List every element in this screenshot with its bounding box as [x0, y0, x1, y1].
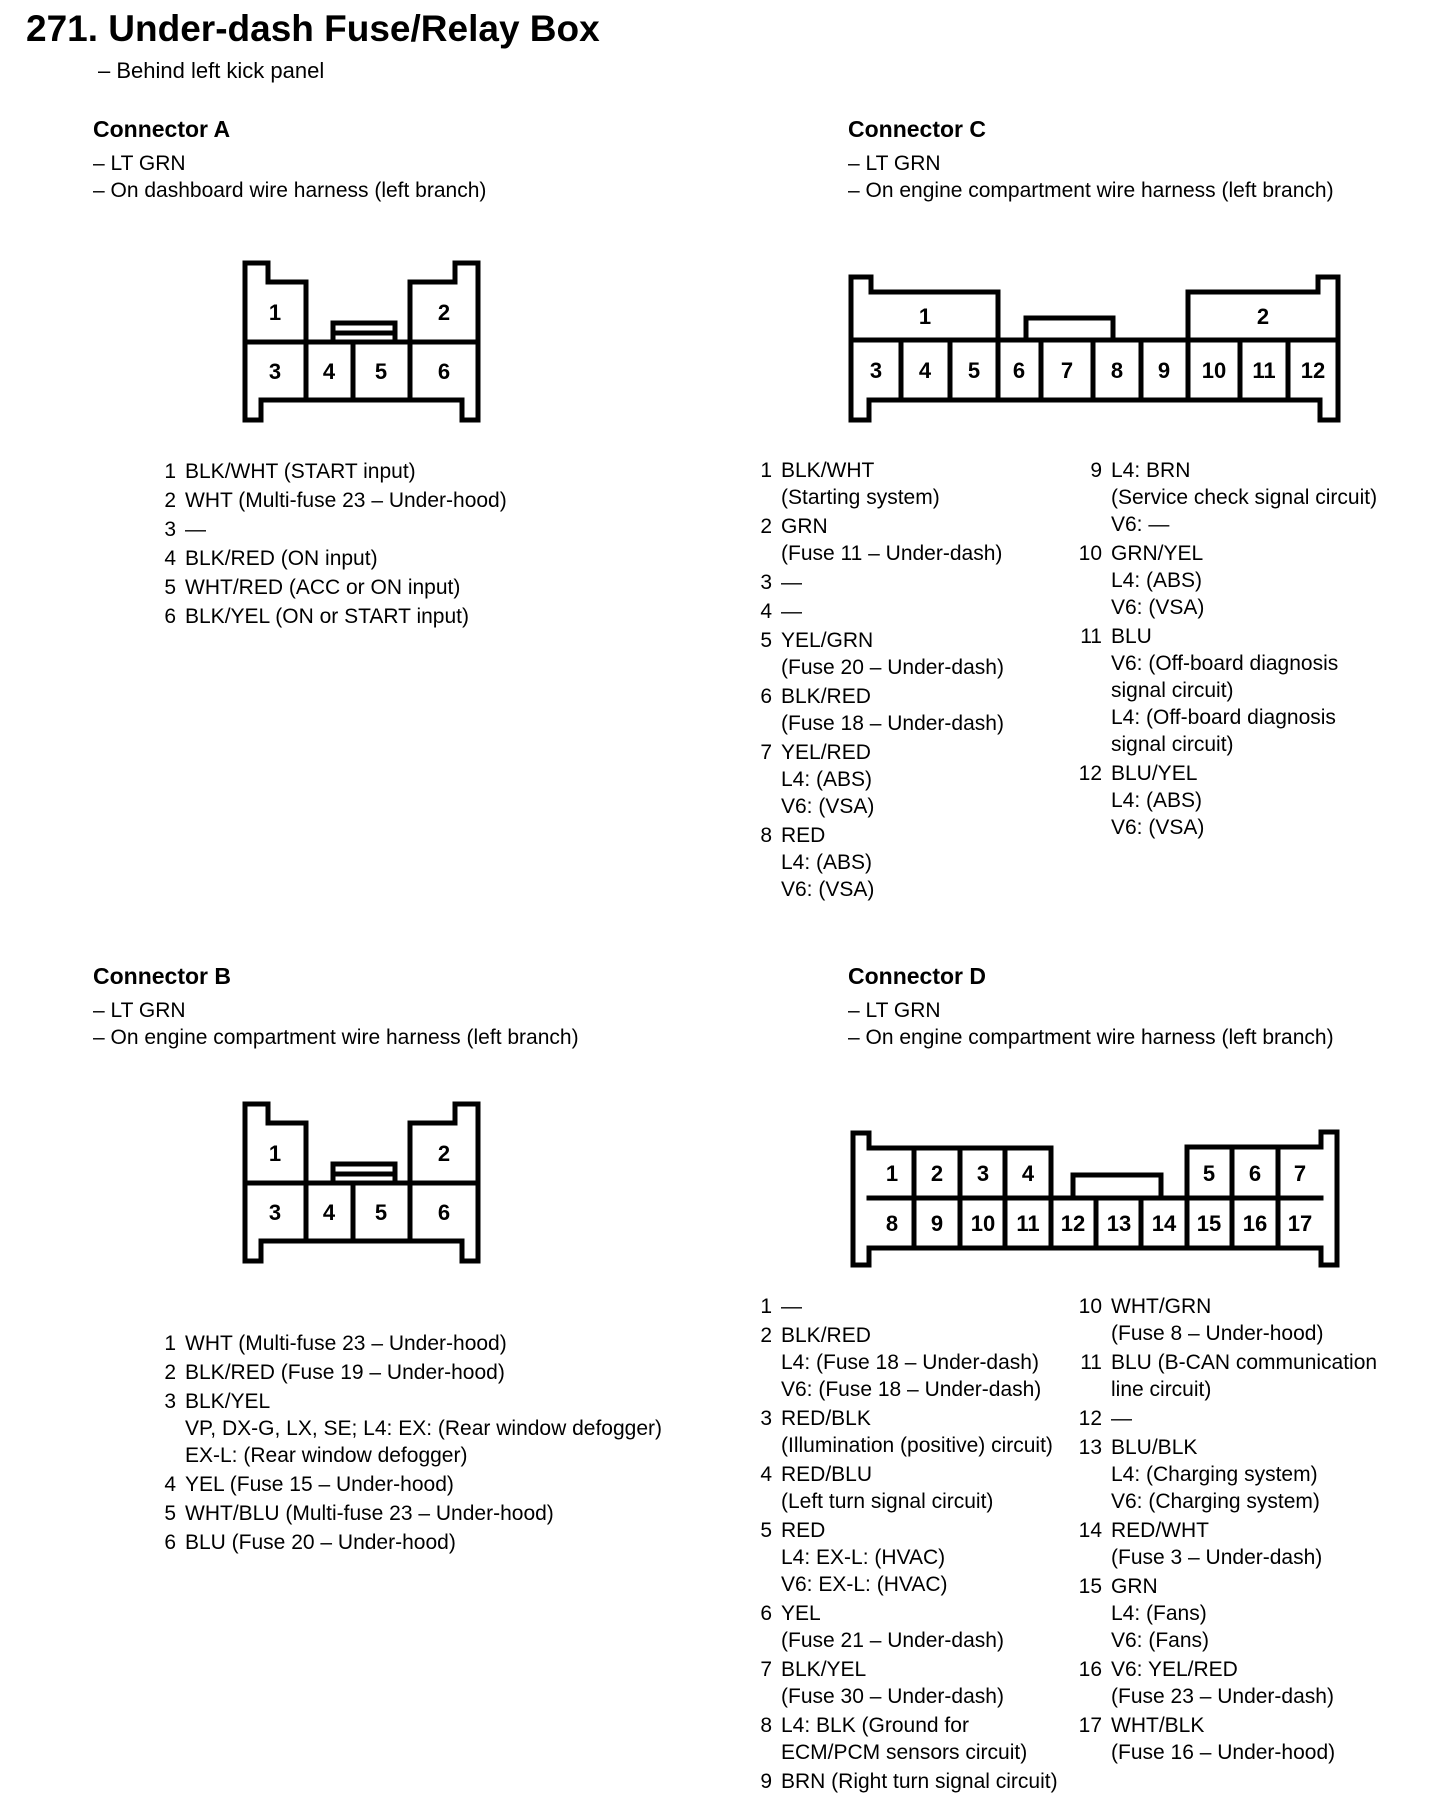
pin-cavity-number: 5 [375, 359, 387, 384]
pin-cavity-number: 1 [919, 304, 931, 329]
pin-description-line: RED [781, 822, 874, 849]
connector-d-pin-list-left: 1—2BLK/REDL4: (Fuse 18 – Under-dash)V6: … [742, 1293, 1058, 1797]
pin-description-line: GRN [1111, 1573, 1209, 1600]
pin-description-line: BLK/RED (ON input) [185, 545, 378, 572]
pin-description-line: WHT/RED (ACC or ON input) [185, 574, 460, 601]
connector-b-note-harness: – On engine compartment wire harness (le… [93, 1024, 579, 1051]
pin-description-line: (Fuse 18 – Under-dash) [781, 710, 1004, 737]
pin-cavity-number: 9 [1158, 358, 1170, 383]
pin-number: 12 [1072, 1405, 1102, 1432]
pin-description-line: BRN (Right turn signal circuit) [781, 1768, 1058, 1795]
pin-entry: 6YEL(Fuse 21 – Under-dash) [742, 1600, 1058, 1654]
pin-description-line: V6: (VSA) [1111, 814, 1204, 841]
pin-entry: 5YEL/GRN(Fuse 20 – Under-dash) [742, 627, 1004, 681]
pin-description: WHT/GRN(Fuse 8 – Under-hood) [1111, 1293, 1323, 1347]
pin-description: REDL4: EX-L: (HVAC)V6: EX-L: (HVAC) [781, 1517, 947, 1598]
pin-description-line: RED/BLU [781, 1461, 993, 1488]
pin-number: 14 [1072, 1517, 1102, 1571]
pin-description-line: (Service check signal circuit) [1111, 484, 1377, 511]
pin-description-line: (Fuse 23 – Under-dash) [1111, 1683, 1334, 1710]
pin-entry: 3— [742, 569, 1004, 596]
connector-b-pin-list: 1WHT (Multi-fuse 23 – Under-hood)2BLK/RE… [146, 1330, 662, 1558]
pin-entry: 3— [146, 516, 507, 543]
pin-entry: 17WHT/BLK(Fuse 16 – Under-hood) [1072, 1712, 1377, 1766]
pin-description-line: (Fuse 16 – Under-hood) [1111, 1739, 1335, 1766]
pin-description-line: L4: (ABS) [781, 849, 874, 876]
pin-entry: 7BLK/YEL(Fuse 30 – Under-dash) [742, 1656, 1058, 1710]
pin-number: 15 [1072, 1573, 1102, 1654]
pin-description-line: V6: (VSA) [1111, 594, 1204, 621]
pin-description: GRNL4: (Fans)V6: (Fans) [1111, 1573, 1209, 1654]
pin-description-line: line circuit) [1111, 1376, 1377, 1403]
pin-description-line: YEL [781, 1600, 1004, 1627]
pin-cavity-number: 12 [1061, 1211, 1085, 1236]
pin-cavity-number: 8 [1111, 358, 1123, 383]
pin-description: — [185, 516, 206, 543]
pin-cavity-number: 5 [1203, 1161, 1215, 1186]
pin-number: 3 [146, 1388, 176, 1469]
connector-b-note-color: – LT GRN [93, 997, 579, 1024]
pin-cavity-number: 6 [438, 1200, 450, 1225]
pin-entry: 5WHT/RED (ACC or ON input) [146, 574, 507, 601]
pin-description-line: WHT (Multi-fuse 23 – Under-hood) [185, 487, 507, 514]
pin-description-line: GRN [781, 513, 1002, 540]
pin-cavity-number: 4 [323, 1200, 336, 1225]
pin-description: BLU (B-CAN communicationline circuit) [1111, 1349, 1377, 1403]
connector-c-pin-list-left: 1BLK/WHT(Starting system)2GRN(Fuse 11 – … [742, 457, 1004, 905]
pin-entry: 6BLU (Fuse 20 – Under-hood) [146, 1529, 662, 1556]
pin-entry: 15GRNL4: (Fans)V6: (Fans) [1072, 1573, 1377, 1654]
pin-number: 4 [146, 1471, 176, 1498]
pin-cavity-number: 9 [931, 1211, 943, 1236]
pin-description: YEL/GRN(Fuse 20 – Under-dash) [781, 627, 1004, 681]
pin-description-line: BLU/YEL [1111, 760, 1204, 787]
manual-page: 271. Under-dash Fuse/Relay Box – Behind … [0, 0, 1456, 1808]
pin-description: BLU/YELL4: (ABS)V6: (VSA) [1111, 760, 1204, 841]
pin-entry: 8REDL4: (ABS)V6: (VSA) [742, 822, 1004, 903]
pin-description-line: V6: (Fuse 18 – Under-dash) [781, 1376, 1041, 1403]
pin-description: BLK/YELVP, DX-G, LX, SE; L4: EX: (Rear w… [185, 1388, 662, 1469]
pin-description: WHT/BLU (Multi-fuse 23 – Under-hood) [185, 1500, 554, 1527]
pin-description-line: BLK/WHT (START input) [185, 458, 416, 485]
pin-entry: 12— [1072, 1405, 1377, 1432]
pin-entry: 11BLUV6: (Off-board diagnosissignal circ… [1072, 623, 1377, 758]
pin-cavity-number: 2 [931, 1161, 943, 1186]
pin-description-line: (Illumination (positive) circuit) [781, 1432, 1053, 1459]
pin-number: 4 [146, 545, 176, 572]
pin-description: BLUV6: (Off-board diagnosissignal circui… [1111, 623, 1338, 758]
pin-description-line: BLK/RED [781, 1322, 1041, 1349]
connector-b-heading: Connector B [93, 963, 579, 990]
pin-description: WHT/BLK(Fuse 16 – Under-hood) [1111, 1712, 1335, 1766]
pin-description: L4: BLK (Ground forECM/PCM sensors circu… [781, 1712, 1027, 1766]
pin-entry: 1BLK/WHT (START input) [146, 458, 507, 485]
pin-description: GRN/YELL4: (ABS)V6: (VSA) [1111, 540, 1204, 621]
pin-entry: 9BRN (Right turn signal circuit) [742, 1768, 1058, 1795]
pin-cavity-number: 10 [1202, 358, 1226, 383]
pin-description-line: BLK/YEL [781, 1656, 1004, 1683]
pin-description-line: BLU/BLK [1111, 1434, 1320, 1461]
pin-description-line: V6: (Charging system) [1111, 1488, 1320, 1515]
connector-a-heading: Connector A [93, 116, 486, 143]
pin-cavity-number: 3 [977, 1161, 989, 1186]
pin-entry: 5REDL4: EX-L: (HVAC)V6: EX-L: (HVAC) [742, 1517, 1058, 1598]
pin-description: — [1111, 1405, 1132, 1432]
pin-entry: 4RED/BLU(Left turn signal circuit) [742, 1461, 1058, 1515]
pin-number: 6 [742, 683, 772, 737]
pin-number: 7 [742, 739, 772, 820]
connector-d-pin-list-right: 10WHT/GRN(Fuse 8 – Under-hood)11BLU (B-C… [1072, 1293, 1377, 1768]
pin-description: YEL/REDL4: (ABS)V6: (VSA) [781, 739, 874, 820]
pin-cavity-number: 6 [438, 359, 450, 384]
pin-cavity-number: 11 [1016, 1211, 1039, 1236]
pin-cavity-number: 3 [269, 1200, 281, 1225]
pin-description-line: L4: (ABS) [1111, 567, 1204, 594]
pin-entry: 4YEL (Fuse 15 – Under-hood) [146, 1471, 662, 1498]
pin-number: 5 [146, 1500, 176, 1527]
pin-description-line: L4: (ABS) [781, 766, 874, 793]
pin-entry: 1WHT (Multi-fuse 23 – Under-hood) [146, 1330, 662, 1357]
pin-description-line: GRN/YEL [1111, 540, 1204, 567]
pin-description-line: (Starting system) [781, 484, 940, 511]
pin-description: — [781, 569, 802, 596]
pin-number: 7 [742, 1656, 772, 1710]
pin-number: 2 [742, 513, 772, 567]
pin-description: — [781, 1293, 802, 1320]
pin-description: BLK/WHT(Starting system) [781, 457, 940, 511]
pin-description: BLK/WHT (START input) [185, 458, 416, 485]
pin-description: BLK/YEL (ON or START input) [185, 603, 469, 630]
connector-d-diagram: 1234567891011121314151617 [850, 1126, 1342, 1269]
pin-number: 5 [742, 627, 772, 681]
pin-description-line: V6: (Off-board diagnosis [1111, 650, 1338, 677]
pin-description-line: (Fuse 20 – Under-dash) [781, 654, 1004, 681]
pin-description-line: — [781, 1293, 802, 1320]
pin-number: 11 [1072, 1349, 1102, 1403]
pin-description-line: V6: YEL/RED [1111, 1656, 1334, 1683]
connector-c-pin-list-right: 9L4: BRN(Service check signal circuit)V6… [1072, 457, 1377, 843]
pin-description: RED/BLU(Left turn signal circuit) [781, 1461, 993, 1515]
pin-number: 11 [1072, 623, 1102, 758]
pin-description-line: V6: (VSA) [781, 876, 874, 903]
pin-number: 6 [146, 1529, 176, 1556]
pin-entry: 10WHT/GRN(Fuse 8 – Under-hood) [1072, 1293, 1377, 1347]
pin-cavity-number: 2 [438, 1141, 450, 1166]
pin-description-line: BLK/WHT [781, 457, 940, 484]
pin-number: 5 [146, 574, 176, 601]
pin-entry: 5WHT/BLU (Multi-fuse 23 – Under-hood) [146, 1500, 662, 1527]
connector-d-note-color: – LT GRN [848, 997, 1334, 1024]
pin-number: 8 [742, 1712, 772, 1766]
connector-a-note-color: – LT GRN [93, 150, 486, 177]
pin-description: WHT/RED (ACC or ON input) [185, 574, 460, 601]
connector-c-heading: Connector C [848, 116, 1334, 143]
pin-entry: 8L4: BLK (Ground forECM/PCM sensors circ… [742, 1712, 1058, 1766]
pin-description-line: RED/WHT [1111, 1517, 1322, 1544]
pin-cavity-number: 1 [269, 300, 281, 325]
pin-entry: 9L4: BRN(Service check signal circuit)V6… [1072, 457, 1377, 538]
pin-cavity-number: 4 [1022, 1161, 1035, 1186]
pin-entry: 2GRN(Fuse 11 – Under-dash) [742, 513, 1004, 567]
pin-description-line: V6: EX-L: (HVAC) [781, 1571, 947, 1598]
pin-description-line: BLK/YEL [185, 1388, 662, 1415]
pin-number: 17 [1072, 1712, 1102, 1766]
pin-description: RED/WHT(Fuse 3 – Under-dash) [1111, 1517, 1322, 1571]
connector-d-heading: Connector D [848, 963, 1334, 990]
connector-c-diagram: 123456789101112 [848, 273, 1341, 424]
pin-number: 3 [146, 516, 176, 543]
pin-entry: 1BLK/WHT(Starting system) [742, 457, 1004, 511]
connector-d-header: Connector D – LT GRN – On engine compart… [848, 963, 1334, 1051]
connector-a-header: Connector A – LT GRN – On dashboard wire… [93, 116, 486, 204]
pin-description: — [781, 598, 802, 625]
pin-cavity-number: 16 [1243, 1211, 1267, 1236]
pin-number: 2 [146, 1359, 176, 1386]
page-title: 271. Under-dash Fuse/Relay Box [26, 8, 600, 50]
page-subnote: – Behind left kick panel [98, 58, 324, 84]
pin-description: GRN(Fuse 11 – Under-dash) [781, 513, 1002, 567]
pin-number: 1 [146, 1330, 176, 1357]
pin-description-line: (Fuse 8 – Under-hood) [1111, 1320, 1323, 1347]
pin-cavity-number: 2 [1257, 304, 1269, 329]
pin-number: 4 [742, 598, 772, 625]
connector-c-note-harness: – On engine compartment wire harness (le… [848, 177, 1334, 204]
pin-entry: 6BLK/YEL (ON or START input) [146, 603, 507, 630]
pin-cavity-number: 7 [1061, 358, 1073, 383]
pin-description-line: BLU (B-CAN communication [1111, 1349, 1377, 1376]
pin-number: 1 [146, 458, 176, 485]
connector-a-pin-list: 1BLK/WHT (START input)2WHT (Multi-fuse 2… [146, 458, 507, 632]
pin-number: 9 [742, 1768, 772, 1795]
connector-c-header: Connector C – LT GRN – On engine compart… [848, 116, 1334, 204]
pin-description-line: (Fuse 3 – Under-dash) [1111, 1544, 1322, 1571]
pin-cavity-number: 2 [438, 300, 450, 325]
pin-description: WHT (Multi-fuse 23 – Under-hood) [185, 487, 507, 514]
pin-description-line: BLK/RED [781, 683, 1004, 710]
pin-description: V6: YEL/RED(Fuse 23 – Under-dash) [1111, 1656, 1334, 1710]
pin-entry: 14RED/WHT(Fuse 3 – Under-dash) [1072, 1517, 1377, 1571]
pin-entry: 4BLK/RED (ON input) [146, 545, 507, 572]
pin-description-line: L4: (Off-board diagnosis [1111, 704, 1338, 731]
pin-number: 3 [742, 569, 772, 596]
pin-description: YEL(Fuse 21 – Under-dash) [781, 1600, 1004, 1654]
pin-description-line: (Left turn signal circuit) [781, 1488, 993, 1515]
pin-description-line: V6: (Fans) [1111, 1627, 1209, 1654]
pin-description: BLK/REDL4: (Fuse 18 – Under-dash)V6: (Fu… [781, 1322, 1041, 1403]
connector-a-note-harness: – On dashboard wire harness (left branch… [93, 177, 486, 204]
pin-description-line: BLU [1111, 623, 1338, 650]
pin-description: L4: BRN(Service check signal circuit)V6:… [1111, 457, 1377, 538]
pin-description-line: L4: (Fuse 18 – Under-dash) [781, 1349, 1041, 1376]
pin-description: BLU/BLKL4: (Charging system)V6: (Chargin… [1111, 1434, 1320, 1515]
pin-number: 6 [742, 1600, 772, 1654]
connector-b-diagram: 123456 [242, 1100, 482, 1266]
pin-description: BRN (Right turn signal circuit) [781, 1768, 1058, 1795]
pin-description-line: signal circuit) [1111, 731, 1338, 758]
pin-entry: 7YEL/REDL4: (ABS)V6: (VSA) [742, 739, 1004, 820]
pin-number: 6 [146, 603, 176, 630]
pin-number: 13 [1072, 1434, 1102, 1515]
pin-cavity-number: 13 [1107, 1211, 1131, 1236]
pin-cavity-number: 6 [1249, 1161, 1261, 1186]
pin-description-line: L4: BLK (Ground for [781, 1712, 1027, 1739]
pin-cavity-number: 5 [968, 358, 980, 383]
pin-description: REDL4: (ABS)V6: (VSA) [781, 822, 874, 903]
pin-description-line: (Fuse 21 – Under-dash) [781, 1627, 1004, 1654]
pin-description-line: (Fuse 30 – Under-dash) [781, 1683, 1004, 1710]
pin-number: 10 [1072, 540, 1102, 621]
pin-number: 12 [1072, 760, 1102, 841]
pin-entry: 6BLK/RED(Fuse 18 – Under-dash) [742, 683, 1004, 737]
pin-number: 3 [742, 1405, 772, 1459]
pin-description-line: L4: (Fans) [1111, 1600, 1209, 1627]
pin-cavity-number: 3 [870, 358, 882, 383]
pin-description-line: — [781, 598, 802, 625]
pin-description-line: YEL/RED [781, 739, 874, 766]
pin-cavity-number: 1 [886, 1161, 898, 1186]
pin-description-line: BLK/RED (Fuse 19 – Under-hood) [185, 1359, 505, 1386]
pin-description-line: L4: BRN [1111, 457, 1377, 484]
pin-description: YEL (Fuse 15 – Under-hood) [185, 1471, 454, 1498]
pin-entry: 2WHT (Multi-fuse 23 – Under-hood) [146, 487, 507, 514]
pin-cavity-number: 8 [886, 1211, 898, 1236]
pin-description-line: — [781, 569, 802, 596]
pin-cavity-number: 5 [375, 1200, 387, 1225]
pin-description: BLK/RED(Fuse 18 – Under-dash) [781, 683, 1004, 737]
pin-description-line: V6: — [1111, 511, 1377, 538]
pin-description-line: WHT/BLK [1111, 1712, 1335, 1739]
pin-description-line: YEL (Fuse 15 – Under-hood) [185, 1471, 454, 1498]
pin-description-line: BLU (Fuse 20 – Under-hood) [185, 1529, 456, 1556]
pin-description-line: L4: (Charging system) [1111, 1461, 1320, 1488]
pin-cavity-number: 4 [919, 358, 932, 383]
connector-a-diagram: 123456 [242, 259, 482, 425]
pin-description-line: BLK/YEL (ON or START input) [185, 603, 469, 630]
pin-entry: 2BLK/RED (Fuse 19 – Under-hood) [146, 1359, 662, 1386]
pin-entry: 3RED/BLK(Illumination (positive) circuit… [742, 1405, 1058, 1459]
pin-number: 16 [1072, 1656, 1102, 1710]
connector-c-note-color: – LT GRN [848, 150, 1334, 177]
pin-cavity-number: 17 [1288, 1211, 1312, 1236]
pin-cavity-number: 6 [1013, 358, 1025, 383]
pin-number: 10 [1072, 1293, 1102, 1347]
pin-description: BLK/YEL(Fuse 30 – Under-dash) [781, 1656, 1004, 1710]
pin-description-line: L4: EX-L: (HVAC) [781, 1544, 947, 1571]
connector-b-header: Connector B – LT GRN – On engine compart… [93, 963, 579, 1051]
pin-cavity-number: 7 [1294, 1161, 1306, 1186]
pin-number: 1 [742, 1293, 772, 1320]
pin-entry: 13BLU/BLKL4: (Charging system)V6: (Charg… [1072, 1434, 1377, 1515]
pin-description: BLU (Fuse 20 – Under-hood) [185, 1529, 456, 1556]
pin-cavity-number: 4 [323, 359, 336, 384]
pin-entry: 3BLK/YELVP, DX-G, LX, SE; L4: EX: (Rear … [146, 1388, 662, 1469]
pin-cavity-number: 12 [1301, 358, 1325, 383]
pin-number: 2 [146, 487, 176, 514]
pin-description-line: V6: (VSA) [781, 793, 874, 820]
pin-entry: 10GRN/YELL4: (ABS)V6: (VSA) [1072, 540, 1377, 621]
pin-description-line: ECM/PCM sensors circuit) [781, 1739, 1027, 1766]
pin-number: 9 [1072, 457, 1102, 538]
pin-description-line: WHT/BLU (Multi-fuse 23 – Under-hood) [185, 1500, 554, 1527]
pin-entry: 4— [742, 598, 1004, 625]
pin-entry: 16V6: YEL/RED(Fuse 23 – Under-dash) [1072, 1656, 1377, 1710]
pin-description: WHT (Multi-fuse 23 – Under-hood) [185, 1330, 507, 1357]
pin-description-line: — [1111, 1405, 1132, 1432]
connector-d-note-harness: – On engine compartment wire harness (le… [848, 1024, 1334, 1051]
pin-entry: 12BLU/YELL4: (ABS)V6: (VSA) [1072, 760, 1377, 841]
pin-description-line: WHT/GRN [1111, 1293, 1323, 1320]
pin-description-line: L4: (ABS) [1111, 787, 1204, 814]
pin-number: 2 [742, 1322, 772, 1403]
pin-entry: 11BLU (B-CAN communicationline circuit) [1072, 1349, 1377, 1403]
pin-description: BLK/RED (Fuse 19 – Under-hood) [185, 1359, 505, 1386]
pin-entry: 1— [742, 1293, 1058, 1320]
pin-description-line: signal circuit) [1111, 677, 1338, 704]
pin-cavity-number: 14 [1152, 1211, 1177, 1236]
pin-cavity-number: 15 [1197, 1211, 1221, 1236]
pin-number: 4 [742, 1461, 772, 1515]
pin-number: 8 [742, 822, 772, 903]
pin-entry: 2BLK/REDL4: (Fuse 18 – Under-dash)V6: (F… [742, 1322, 1058, 1403]
pin-description-line: RED [781, 1517, 947, 1544]
pin-cavity-number: 10 [971, 1211, 995, 1236]
pin-description: RED/BLK(Illumination (positive) circuit) [781, 1405, 1053, 1459]
pin-number: 5 [742, 1517, 772, 1598]
pin-description: BLK/RED (ON input) [185, 545, 378, 572]
pin-description-line: WHT (Multi-fuse 23 – Under-hood) [185, 1330, 507, 1357]
pin-cavity-number: 1 [269, 1141, 281, 1166]
pin-description-line: (Fuse 11 – Under-dash) [781, 540, 1002, 567]
pin-description-line: RED/BLK [781, 1405, 1053, 1432]
pin-number: 1 [742, 457, 772, 511]
pin-description-line: YEL/GRN [781, 627, 1004, 654]
pin-cavity-number: 11 [1252, 358, 1275, 383]
pin-cavity-number: 3 [269, 359, 281, 384]
pin-description-line: — [185, 516, 206, 543]
pin-description-line: EX-L: (Rear window defogger) [185, 1442, 662, 1469]
pin-description-line: VP, DX-G, LX, SE; L4: EX: (Rear window d… [185, 1415, 662, 1442]
